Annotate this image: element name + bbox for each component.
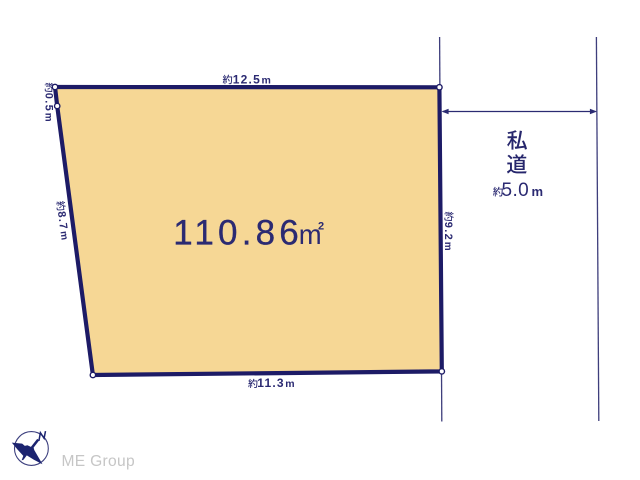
svg-text:9.2m: 9.2m	[442, 222, 454, 252]
svg-text:ME Group: ME Group	[62, 453, 135, 470]
svg-text:11.3m: 11.3m	[257, 376, 296, 390]
svg-text:5.0: 5.0	[502, 180, 530, 201]
svg-text:0.5m: 0.5m	[43, 93, 55, 123]
svg-text:2: 2	[318, 221, 324, 233]
svg-text:110.86: 110.86	[173, 214, 303, 253]
svg-text:m: m	[532, 184, 544, 199]
svg-text:12.5m: 12.5m	[233, 72, 272, 86]
